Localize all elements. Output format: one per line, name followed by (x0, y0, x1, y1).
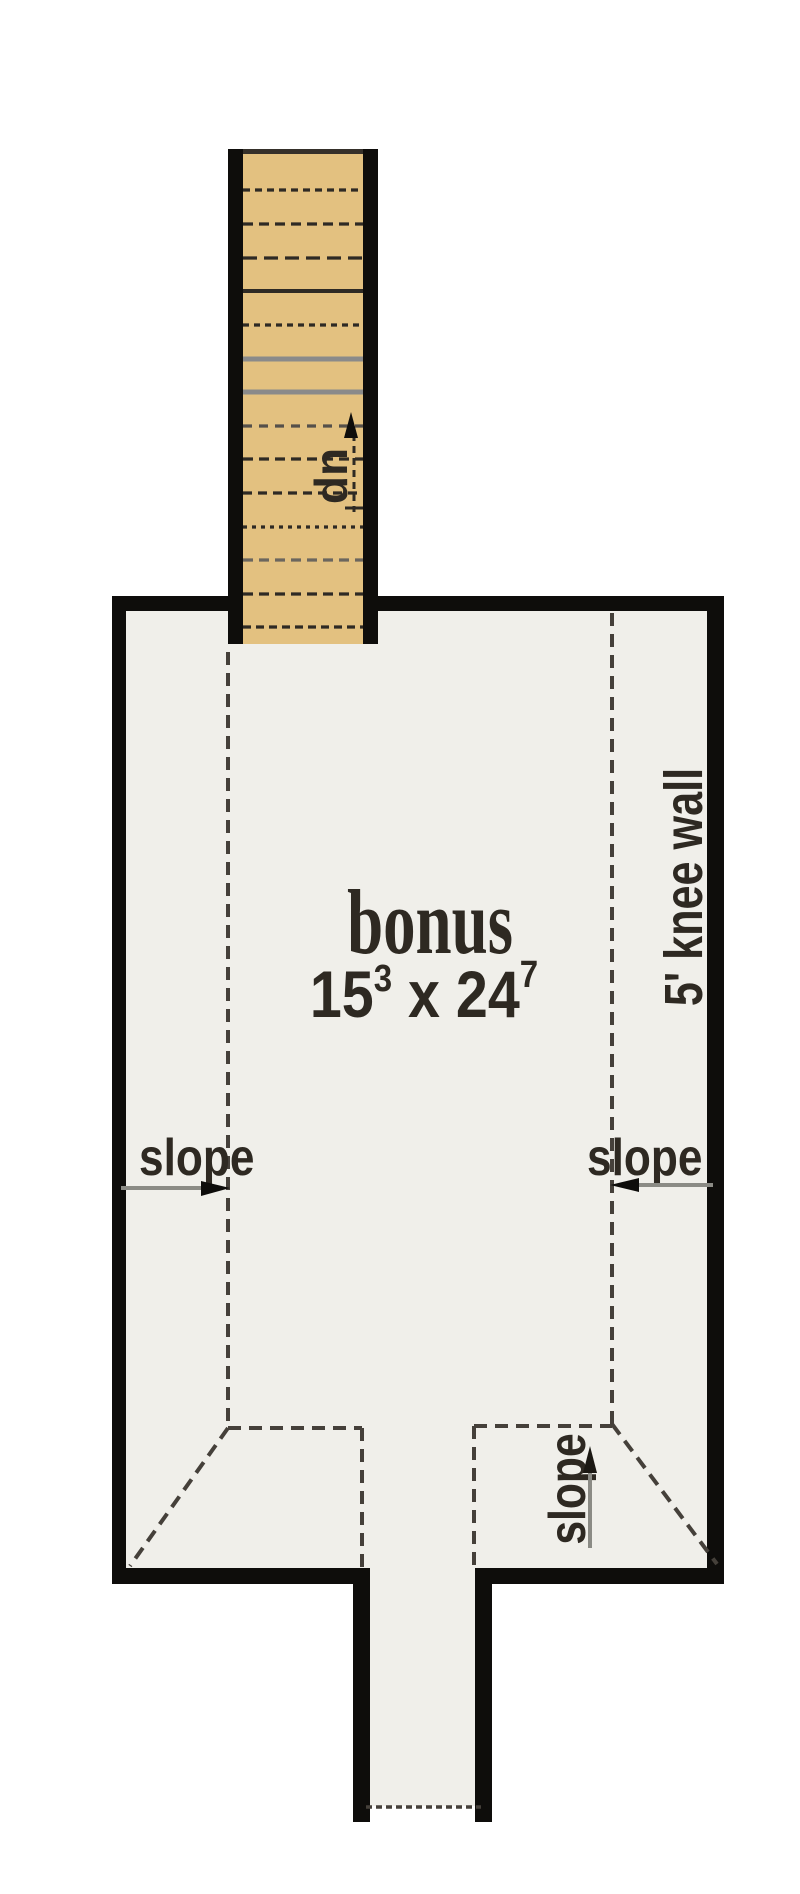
svg-text:slope: slope (139, 1129, 254, 1187)
svg-text:153 x 247: 153 x 247 (310, 953, 538, 1032)
svg-text:5' knee wall: 5' knee wall (655, 768, 715, 1006)
svg-text:dn: dn (305, 448, 357, 504)
svg-text:slope: slope (587, 1129, 702, 1187)
